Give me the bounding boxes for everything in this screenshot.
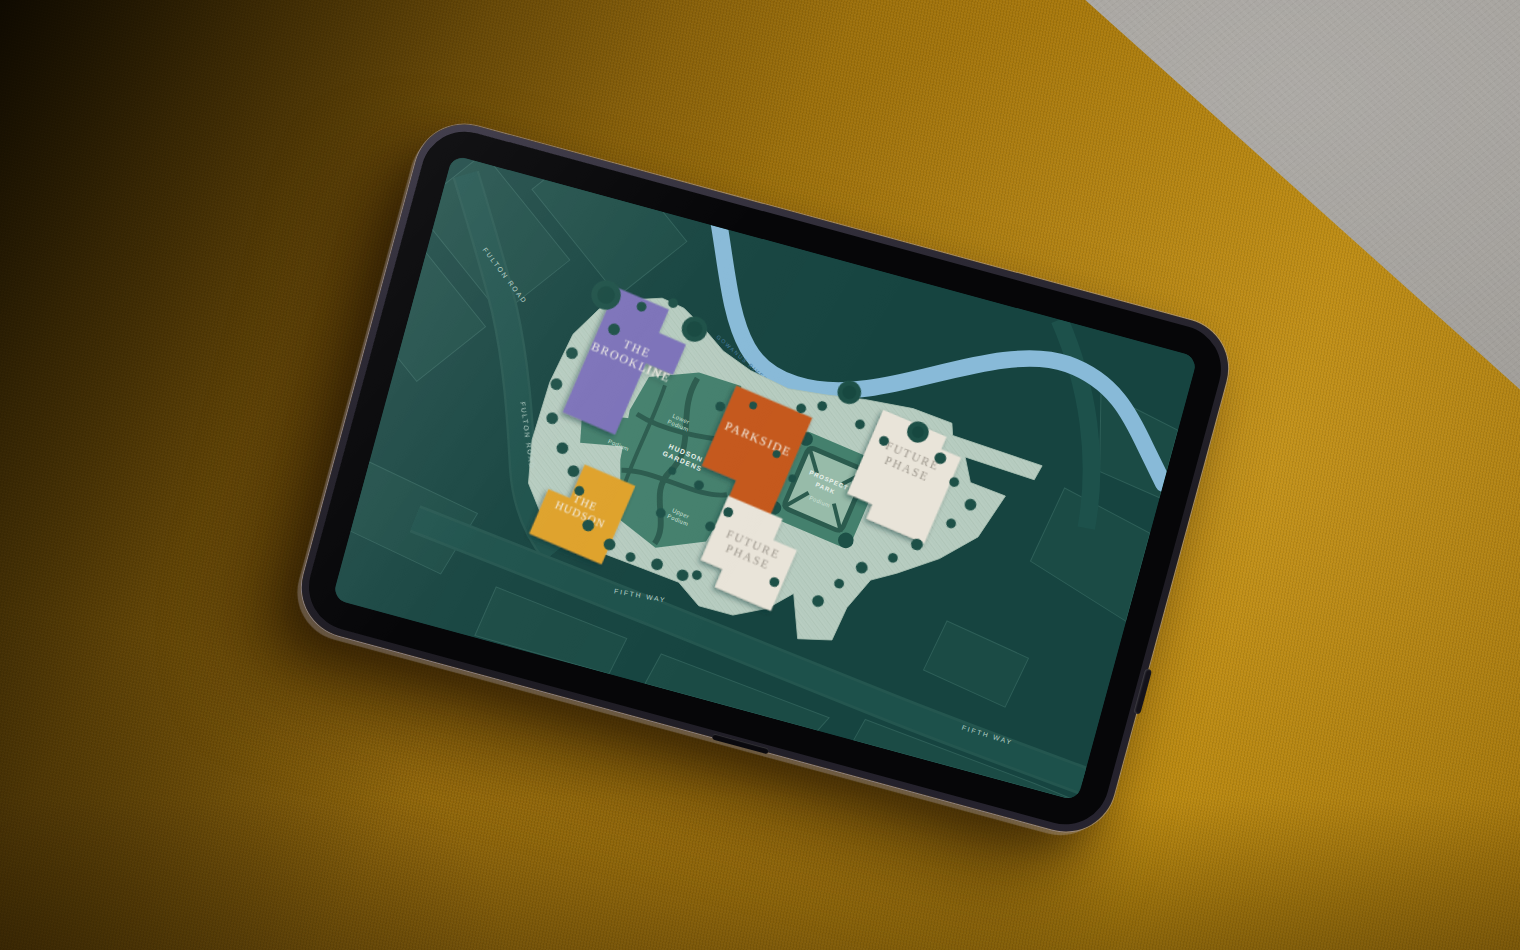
svg-text:Podium: Podium <box>666 513 689 527</box>
podium-gardens: Lower Podium Upper Podium HUDSON GARDENS <box>553 346 763 564</box>
svg-text:BROOKLINE: BROOKLINE <box>589 339 673 385</box>
prospect-park[interactable]: PROSPECT PARK Podium <box>764 428 887 550</box>
building-hudson[interactable]: THE HUDSON <box>529 455 635 564</box>
svg-text:GARDENS: GARDENS <box>662 449 704 472</box>
photo-scene: GOWANUS RIVER <box>0 0 1520 950</box>
svg-text:THE: THE <box>621 337 653 361</box>
svg-text:THE: THE <box>571 492 599 513</box>
street-labels: FULTON ROAD FULTON ROAD FIFTH WAY FIFTH … <box>392 245 1102 746</box>
svg-text:Podium: Podium <box>808 495 831 509</box>
svg-text:PARKSIDE: PARKSIDE <box>723 419 794 460</box>
upper-podium-label: Upper Podium <box>666 506 692 527</box>
hudson-gardens-label: HUDSON GARDENS <box>662 441 707 472</box>
lower-podium-label: Lower Podium <box>667 412 693 433</box>
street-fifth-way-south: FIFTH WAY <box>614 587 667 603</box>
svg-text:FUTURE: FUTURE <box>724 527 782 561</box>
svg-text:GOWANUS RIVER: GOWANUS RIVER <box>715 334 769 383</box>
podium-terrace-label: Podium <box>607 438 630 452</box>
svg-text:HUDSON: HUDSON <box>553 498 607 530</box>
building-parkside[interactable]: PARKSIDE <box>693 385 812 517</box>
street-fulton-road-west: FULTON ROAD <box>519 401 536 470</box>
site-area <box>500 275 1058 689</box>
svg-text:FUTURE: FUTURE <box>883 439 941 473</box>
tree <box>797 430 815 448</box>
street-fulton-road-north: FULTON ROAD <box>481 246 528 305</box>
svg-text:PROSPECT: PROSPECT <box>808 468 849 491</box>
svg-text:Lower: Lower <box>672 413 691 426</box>
trees <box>510 273 1008 650</box>
tree <box>765 499 783 517</box>
svg-text:PHASE: PHASE <box>724 542 772 572</box>
svg-text:Podium: Podium <box>667 419 690 433</box>
river-label: GOWANUS RIVER <box>715 334 769 383</box>
building-future-phase-north[interactable]: FUTURE PHASE <box>841 410 966 544</box>
street-fifth-way-east: FIFTH WAY <box>961 724 1014 746</box>
tree <box>836 530 857 550</box>
building-brookline[interactable]: THE BROOKLINE <box>563 287 696 446</box>
svg-text:PHASE: PHASE <box>883 454 931 484</box>
svg-text:Podium: Podium <box>607 438 630 452</box>
tree <box>866 459 884 477</box>
svg-text:HUDSON: HUDSON <box>668 443 705 464</box>
svg-text:Upper: Upper <box>671 507 690 520</box>
svg-text:PARK: PARK <box>815 481 837 496</box>
building-future-phase-south[interactable]: FUTURE PHASE <box>693 496 806 611</box>
